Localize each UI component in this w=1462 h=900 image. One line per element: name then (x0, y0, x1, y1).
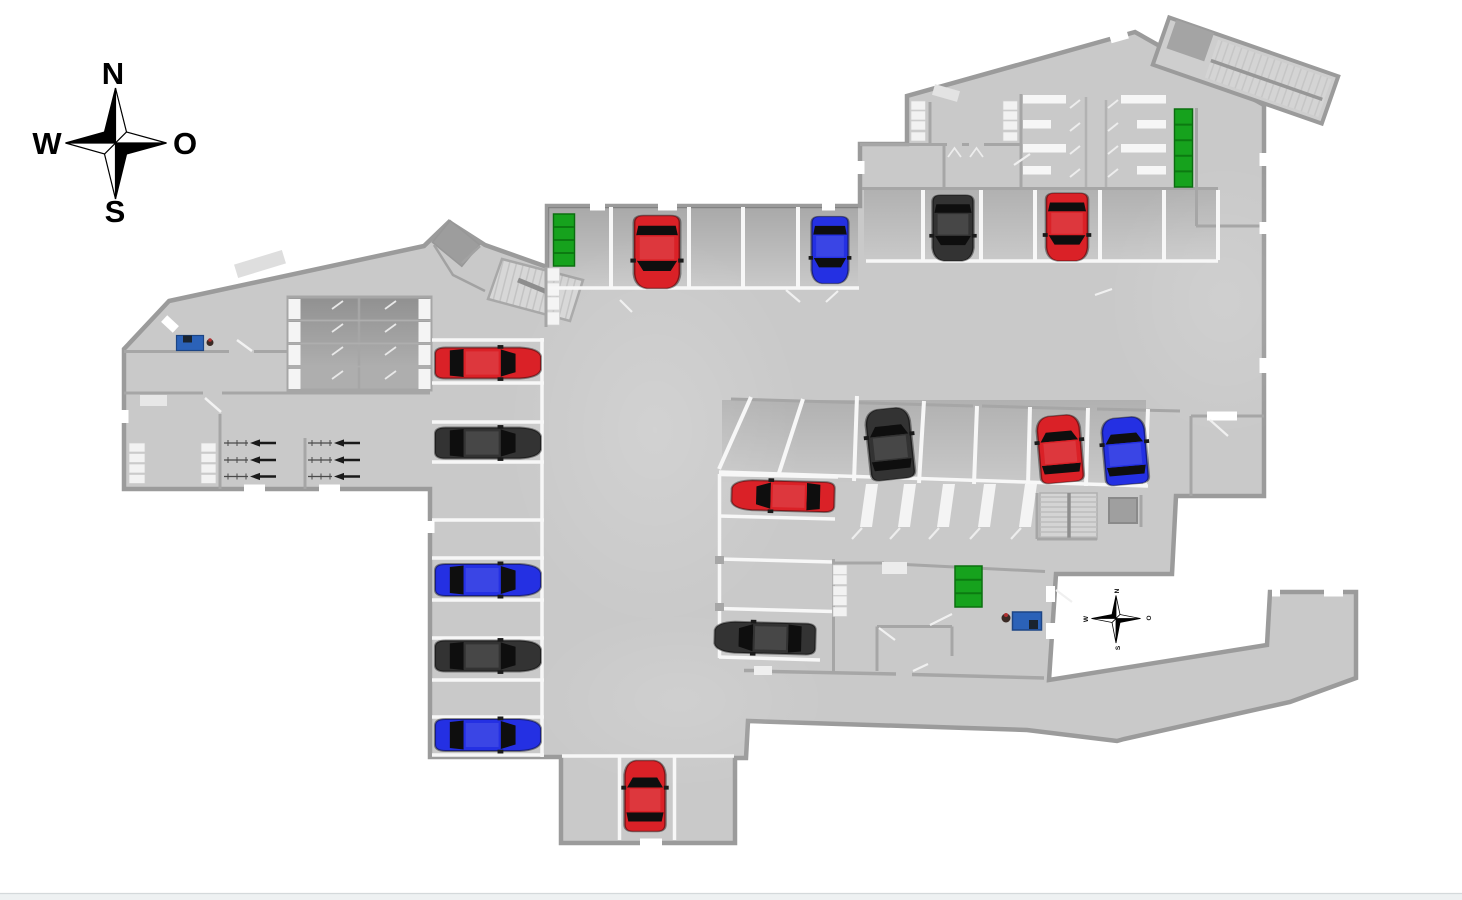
svg-text:O: O (173, 126, 197, 161)
svg-text:S: S (105, 194, 126, 229)
svg-text:N: N (1114, 588, 1121, 593)
svg-text:S: S (1115, 645, 1122, 650)
svg-text:N: N (102, 56, 124, 91)
svg-text:W: W (1083, 615, 1090, 622)
svg-text:W: W (32, 126, 62, 161)
svg-text:O: O (1146, 615, 1153, 620)
